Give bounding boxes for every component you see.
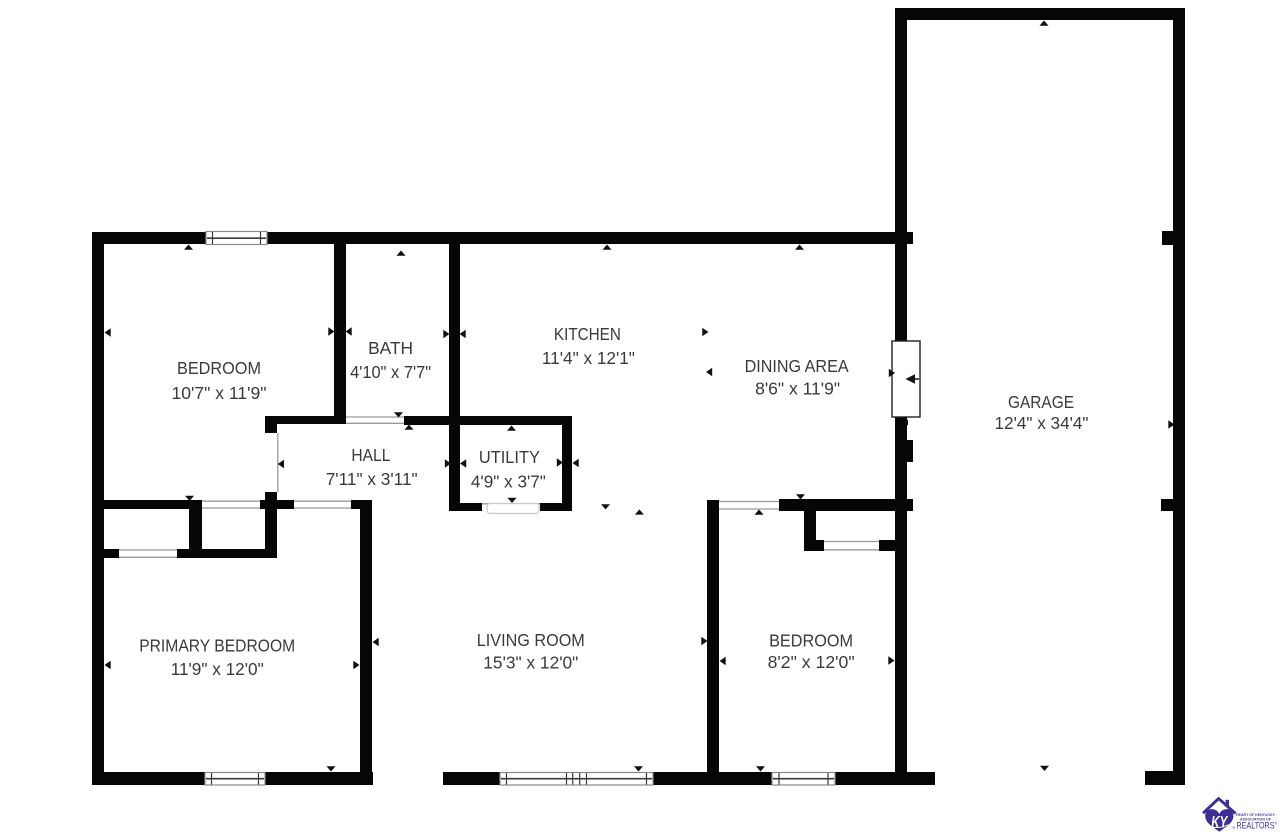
svg-text:®: ® bbox=[1233, 826, 1236, 830]
svg-text:KY: KY bbox=[1211, 814, 1228, 832]
svg-text:10'7" x 11'9": 10'7" x 11'9" bbox=[172, 383, 267, 403]
svg-text:8'6" x 11'9": 8'6" x 11'9" bbox=[755, 379, 840, 399]
svg-text:REALTORS: REALTORS bbox=[1237, 821, 1275, 832]
svg-text:4'9" x 3'7": 4'9" x 3'7" bbox=[471, 472, 546, 492]
svg-text:HALL: HALL bbox=[351, 445, 390, 465]
svg-text:4'10" x 7'7": 4'10" x 7'7" bbox=[350, 362, 431, 382]
svg-text:11'9" x 12'0": 11'9" x 12'0" bbox=[171, 659, 264, 679]
svg-text:PRIMARY BEDROOM: PRIMARY BEDROOM bbox=[139, 636, 295, 656]
svg-text:DINING AREA: DINING AREA bbox=[745, 356, 849, 376]
svg-text:8'2" x 12'0": 8'2" x 12'0" bbox=[768, 652, 855, 672]
svg-text:BATH: BATH bbox=[368, 338, 413, 358]
svg-text:KITCHEN: KITCHEN bbox=[554, 324, 621, 344]
svg-text:BEDROOM: BEDROOM bbox=[177, 358, 261, 378]
svg-text:LIVING ROOM: LIVING ROOM bbox=[477, 630, 585, 650]
svg-text:BEDROOM: BEDROOM bbox=[769, 631, 853, 651]
svg-text:11'4" x 12'1": 11'4" x 12'1" bbox=[542, 348, 635, 368]
svg-text:12'4" x 34'4": 12'4" x 34'4" bbox=[995, 413, 1089, 433]
svg-text:UTILITY: UTILITY bbox=[479, 447, 540, 467]
svg-text:7'11" x 3'11": 7'11" x 3'11" bbox=[326, 469, 418, 489]
svg-text:GARAGE: GARAGE bbox=[1008, 392, 1074, 412]
svg-text:15'3" x 12'0": 15'3" x 12'0" bbox=[483, 653, 578, 673]
